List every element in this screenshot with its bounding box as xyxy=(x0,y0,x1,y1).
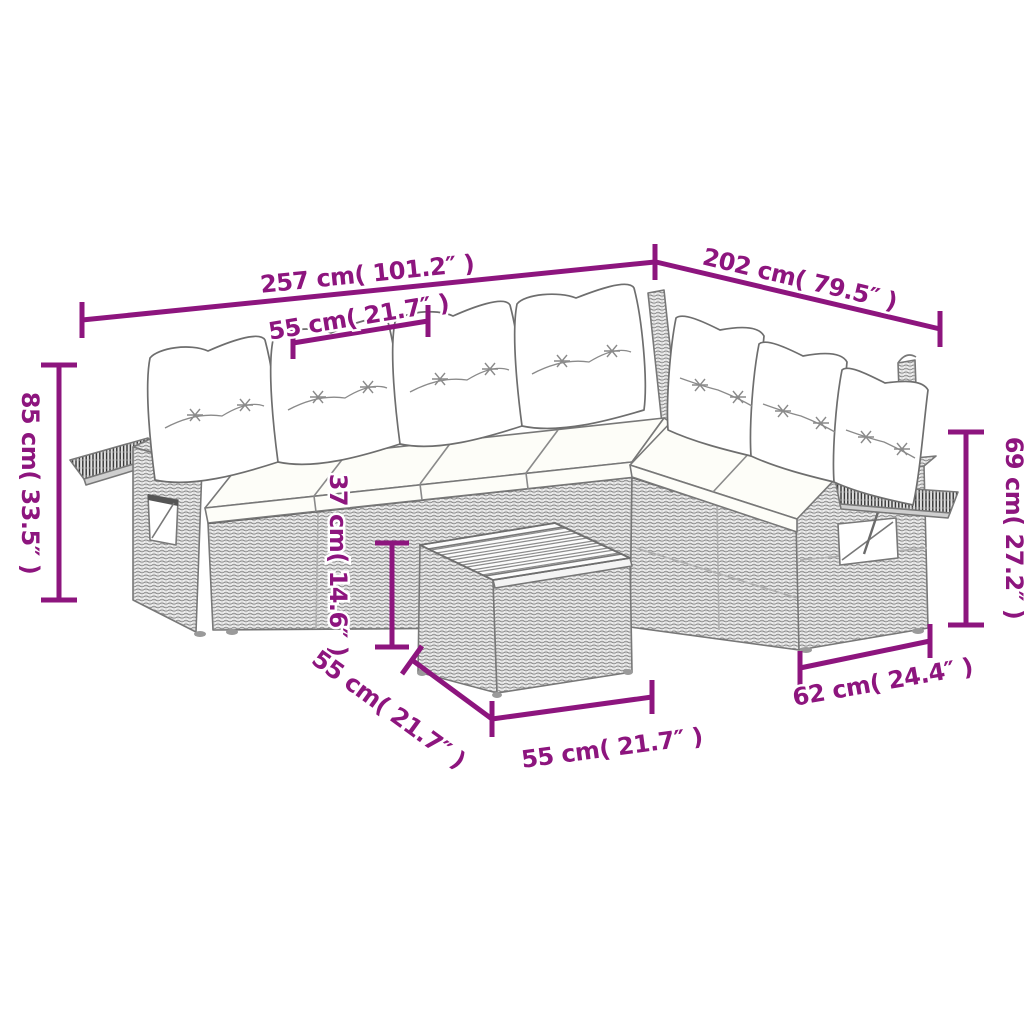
back-cushion xyxy=(148,336,279,482)
dimension-label: 55 cm( 21.7″ ) xyxy=(520,722,705,774)
sofa-illustration xyxy=(70,284,958,698)
dimension-ottoman-width: 55 cm( 21.7″ ) xyxy=(492,680,704,774)
dimension-overall-height: 85 cm( 33.5″ ) xyxy=(16,365,77,600)
dimension-label: 85 cm( 33.5″ ) xyxy=(16,392,44,575)
product-dimension-diagram: 257 cm( 101.2″ ) 202 cm( 79.5″ ) 55 cm( … xyxy=(0,0,1024,1024)
back-cushion xyxy=(515,284,646,428)
dimension-armrest-height: 69 cm( 27.2″ ) xyxy=(948,432,1024,625)
dimension-label: 69 cm( 27.2″ ) xyxy=(1000,437,1024,620)
dimension-label: 37 cm( 14.6″ ) xyxy=(324,474,352,657)
ottoman xyxy=(417,523,633,698)
dimension-label: 62 cm( 24.4″ ) xyxy=(790,652,975,711)
diagram-canvas: 257 cm( 101.2″ ) 202 cm( 79.5″ ) 55 cm( … xyxy=(0,0,1024,1024)
back-cushion xyxy=(750,342,847,482)
back-cushion xyxy=(833,368,928,505)
back-cushion xyxy=(667,316,764,456)
